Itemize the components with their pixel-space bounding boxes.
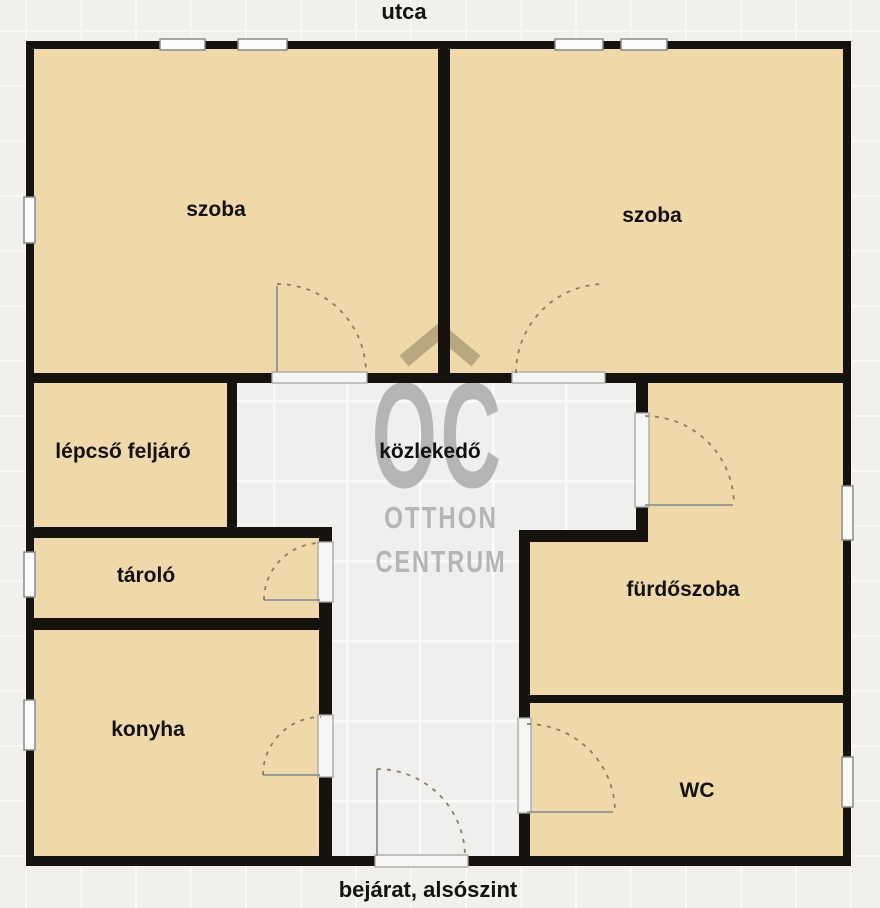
- label-szoba-right: szoba: [622, 204, 682, 228]
- wall-rooms-south: [34, 373, 843, 383]
- wall-furdo-wc-separator: [519, 695, 843, 703]
- watermark-line2: CENTRUM: [375, 544, 506, 579]
- label-lepcso: lépcső feljáró: [55, 440, 190, 464]
- label-tarolo: tároló: [117, 564, 175, 588]
- window-szoba-right-top-1: [555, 39, 603, 50]
- door-opening-furdoszoba: [635, 413, 649, 507]
- door-opening-entrance: [375, 855, 468, 867]
- label-wc: WC: [680, 779, 715, 803]
- wall-szoba-separator: [438, 41, 450, 383]
- label-konyha: konyha: [111, 718, 185, 742]
- wall-furdo-north-lower: [519, 530, 647, 542]
- door-opening-szoba-left: [272, 372, 367, 383]
- wall-lepcso-south: [34, 527, 327, 538]
- door-opening-tarolo: [318, 542, 333, 602]
- wall-lepcso-east: [227, 383, 237, 538]
- wall-tarolo-south: [34, 618, 332, 630]
- watermark-line1: OTTHON: [384, 500, 498, 535]
- door-opening-konyha: [318, 715, 333, 777]
- window-szoba-left-top-1: [160, 39, 205, 50]
- door-opening-szoba-right: [512, 372, 605, 383]
- wall-right: [843, 41, 851, 866]
- room-tarolo: [34, 538, 319, 620]
- label-furdoszoba: fürdőszoba: [626, 578, 739, 602]
- window-furdoszoba-east: [842, 486, 853, 540]
- window-szoba-left-top-2: [238, 39, 287, 50]
- entrance-label: bejárat, alsószint: [339, 877, 518, 903]
- door-opening-wc: [518, 718, 531, 813]
- window-wc-east: [842, 757, 853, 807]
- window-szoba-right-top-2: [621, 39, 667, 50]
- street-label: utca: [381, 0, 426, 25]
- window-tarolo-west: [24, 552, 35, 597]
- room-konyha: [34, 630, 319, 857]
- label-kozlekedo: közlekedő: [379, 440, 481, 464]
- floor-plan: OC OTTHON CENTRUM: [0, 0, 880, 908]
- window-konyha-west: [24, 700, 35, 750]
- window-szoba-left-west: [24, 197, 35, 243]
- label-szoba-left: szoba: [186, 198, 246, 222]
